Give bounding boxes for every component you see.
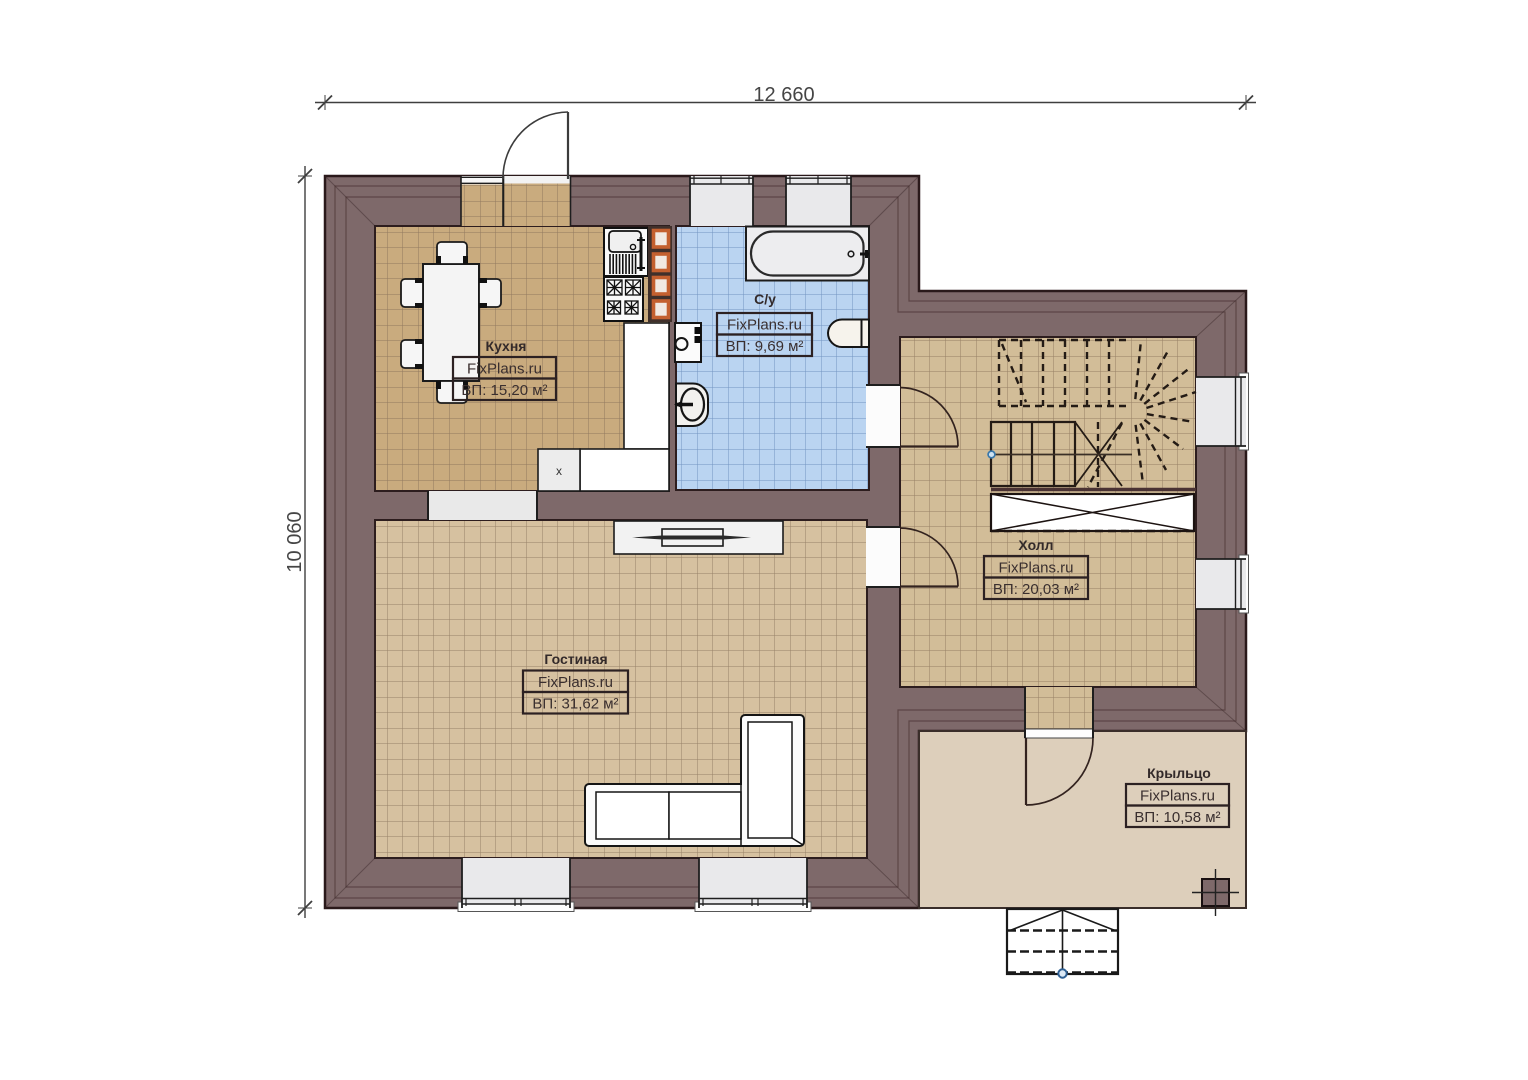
svg-text:ВП: 20,03 м²: ВП: 20,03 м² — [993, 581, 1079, 598]
svg-text:Гостиная: Гостиная — [544, 651, 607, 667]
svg-text:x: x — [556, 464, 562, 478]
svg-text:Крыльцо: Крыльцо — [1147, 765, 1211, 781]
svg-text:FixPlans.ru: FixPlans.ru — [1140, 788, 1215, 805]
svg-text:12 660: 12 660 — [753, 84, 814, 106]
svg-text:FixPlans.ru: FixPlans.ru — [998, 560, 1073, 577]
svg-text:FixPlans.ru: FixPlans.ru — [538, 674, 613, 691]
svg-text:10 060: 10 060 — [284, 511, 306, 572]
svg-text:С/у: С/у — [754, 291, 776, 307]
svg-text:FixPlans.ru: FixPlans.ru — [467, 361, 542, 378]
svg-text:ВП: 10,58 м²: ВП: 10,58 м² — [1134, 809, 1220, 826]
svg-text:Холл: Холл — [1018, 537, 1053, 553]
svg-text:Кухня: Кухня — [486, 338, 527, 354]
svg-text:ВП: 9,69 м²: ВП: 9,69 м² — [726, 338, 804, 355]
svg-text:ВП: 15,20 м²: ВП: 15,20 м² — [461, 382, 547, 399]
svg-text:ВП: 31,62 м²: ВП: 31,62 м² — [532, 696, 618, 713]
svg-text:FixPlans.ru: FixPlans.ru — [727, 317, 802, 334]
